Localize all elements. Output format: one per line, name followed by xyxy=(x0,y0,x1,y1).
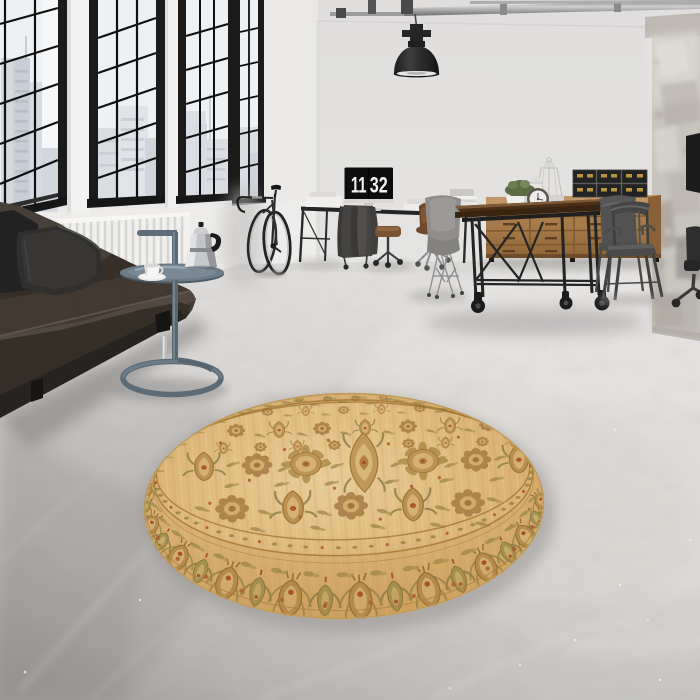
svg-text:32: 32 xyxy=(370,173,388,198)
svg-text:11: 11 xyxy=(351,174,367,199)
